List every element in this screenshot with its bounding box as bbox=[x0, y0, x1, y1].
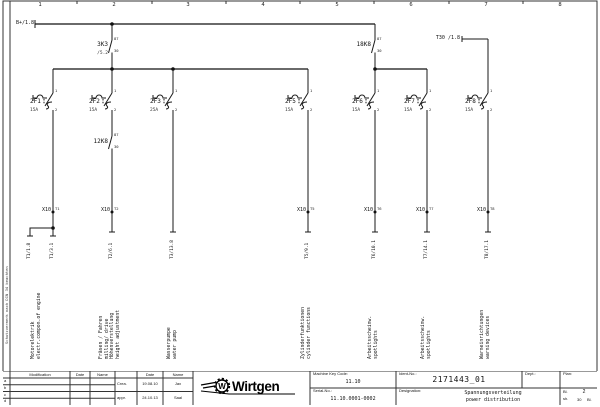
fuse-label: 2F8 bbox=[465, 99, 476, 105]
relay-18k8-label: 18K8 bbox=[347, 42, 371, 48]
fuse-rating: 25A bbox=[150, 108, 158, 113]
function-line: Fräsen / Fahren bbox=[99, 310, 105, 359]
fuse-label: 2F1 bbox=[30, 99, 41, 105]
wire-label: T8/17.1 bbox=[485, 240, 490, 259]
sign-date-header: Date bbox=[137, 373, 163, 378]
relay-3k3-label: 3K3 bbox=[88, 42, 108, 48]
function-line: Höhenverstellung bbox=[110, 310, 116, 359]
relay-12k8-pin30: 30 bbox=[114, 145, 119, 149]
fuse-pin2: 2 bbox=[429, 108, 431, 112]
date-header: Date bbox=[70, 373, 90, 378]
function-line: spotlights bbox=[374, 316, 380, 359]
row-letter: d bbox=[4, 399, 6, 404]
sheet-bl-label: Bl. bbox=[563, 390, 568, 395]
function-line: cylinder functions bbox=[307, 307, 313, 359]
terminal-strip-label: X10 bbox=[292, 208, 306, 213]
row-letter: c bbox=[4, 393, 6, 398]
ruler-4: 4 bbox=[253, 2, 273, 8]
serial-no-value: 11.10.0001-0002 bbox=[310, 397, 396, 402]
wire-label: T3/13.8 bbox=[170, 240, 175, 259]
terminal-pin: T8 bbox=[490, 207, 495, 211]
terminal-pin: T7 bbox=[429, 207, 434, 211]
fuse-label: 2F3 bbox=[150, 99, 161, 105]
fuse-pin1: 1 bbox=[429, 89, 431, 93]
schematic-lines bbox=[0, 0, 600, 371]
mod-header: Modification bbox=[10, 373, 70, 378]
row-letter: b bbox=[4, 386, 6, 391]
relay-18k8-pin87: 87 bbox=[377, 37, 382, 41]
breaker-symbols bbox=[33, 93, 488, 109]
designation-en: power distribution bbox=[433, 398, 553, 403]
function-label-water-pump: Wasserpumpe water pump bbox=[167, 327, 178, 359]
fuse-pin1: 1 bbox=[310, 89, 312, 93]
fuse-rating: 15A bbox=[404, 108, 412, 113]
ruler-8: 8 bbox=[550, 2, 570, 8]
sign-name: Saal bbox=[163, 396, 193, 401]
ident-no-value: 2171443_01 bbox=[396, 378, 522, 383]
sheet-total-suffix: Bl. bbox=[587, 398, 592, 403]
terminal-strip-label: X10 bbox=[37, 208, 51, 213]
function-line: Arbeitsscheinw. bbox=[368, 316, 374, 359]
ruler-5: 5 bbox=[327, 2, 347, 8]
function-line: height adjustment bbox=[116, 310, 122, 359]
sheet-total: 30 bbox=[577, 398, 581, 403]
sign-date: 19.08.10 bbox=[137, 382, 163, 387]
machine-key-label: Machine Key Code: bbox=[313, 372, 348, 377]
fuse-rating: 15A bbox=[465, 108, 473, 113]
function-label-cylinder: Zylinderfunktionen cylinder functions bbox=[301, 307, 312, 359]
fuse-pin2: 2 bbox=[55, 108, 57, 112]
function-line: Wasserpumpe bbox=[167, 327, 173, 359]
wire-label: T1/3.1 bbox=[50, 243, 55, 259]
fuse-label: 2F7 bbox=[404, 99, 415, 105]
relay-3k3-pin87: 87 bbox=[114, 37, 119, 41]
sign-name-header: Name bbox=[163, 373, 193, 378]
drawing-frame bbox=[3, 1, 597, 371]
schematic-sheet: 1 2 3 4 5 6 7 8 B+/1.8 T30 /1.8 3K3 /5.2… bbox=[0, 0, 600, 407]
ruler-7: 7 bbox=[476, 2, 496, 8]
fuse-pin2: 2 bbox=[490, 108, 492, 112]
relay-12k8-pin87: 87 bbox=[114, 133, 119, 137]
fuse-rating: 15A bbox=[352, 108, 360, 113]
junction-dots bbox=[51, 22, 489, 230]
fuse-pin1: 1 bbox=[114, 89, 116, 93]
function-line: Arbeitsscheinw. bbox=[421, 316, 427, 359]
function-line: Warneinrichtungen bbox=[480, 310, 486, 359]
terminal-strip-label: X10 bbox=[96, 208, 110, 213]
terminal-strip-label: X10 bbox=[359, 208, 373, 213]
function-label-spotlights-2: Arbeitsscheinw. spotlights bbox=[421, 316, 432, 359]
wire-label: T1/1.8 bbox=[27, 243, 32, 259]
ruler-1: 1 bbox=[30, 2, 50, 8]
terminal-strip-label: X10 bbox=[411, 208, 425, 213]
sign-row-label: appr. bbox=[117, 396, 126, 401]
wire-label: T7/14.1 bbox=[424, 240, 429, 259]
sheet-sh-label: sh. bbox=[563, 397, 568, 402]
fuse-pin2: 2 bbox=[114, 108, 116, 112]
ruler-6: 6 bbox=[401, 2, 421, 8]
sign-date: 24.10.13 bbox=[137, 396, 163, 401]
ruler-2: 2 bbox=[104, 2, 124, 8]
wire-label: T2/6.1 bbox=[109, 243, 114, 259]
relay-3k3-ref: /5.2 bbox=[92, 51, 108, 56]
designation-de: Spannungsverteilung bbox=[433, 391, 553, 396]
wirtgen-logo: W Wirtgen bbox=[199, 377, 303, 399]
sheet-number: 2 bbox=[573, 390, 595, 395]
terminal-pin: T6 bbox=[377, 207, 382, 211]
sign-name: Jax bbox=[163, 382, 193, 387]
function-label-warning: Warneinrichtungen warning devices bbox=[480, 310, 491, 359]
fuse-label: 2F6 bbox=[352, 99, 363, 105]
terminal-pin: T1 bbox=[55, 207, 60, 211]
designation-label: Designation: bbox=[399, 389, 421, 394]
relay-3k3-pin30: 30 bbox=[114, 49, 119, 53]
row-letter: a bbox=[4, 379, 6, 384]
fuse-pin2: 2 bbox=[377, 108, 379, 112]
t30-label: T30 /1.8 bbox=[432, 36, 460, 41]
fuse-pin2: 2 bbox=[175, 108, 177, 112]
function-line: spotlights bbox=[427, 316, 433, 359]
wire-label: T6/10.1 bbox=[372, 240, 377, 259]
ruler-3: 3 bbox=[178, 2, 198, 8]
fuse-label: 2F2 bbox=[89, 99, 100, 105]
fuse-rating: 15A bbox=[89, 108, 97, 113]
function-label-milling-drive: Fräsen / Fahren milling/ drive Höhenvers… bbox=[99, 310, 121, 359]
function-line: warning devices bbox=[486, 310, 492, 359]
terminal-pin: T2 bbox=[114, 207, 119, 211]
dept-label: Dept.: bbox=[525, 372, 536, 377]
plan-label: Plan: bbox=[563, 372, 572, 377]
fuse-pin1: 1 bbox=[490, 89, 492, 93]
function-label-spotlights-1: Arbeitsscheinw. spotlights bbox=[368, 316, 379, 359]
name-header: Name bbox=[90, 373, 115, 378]
relay-18k8-pin30: 30 bbox=[377, 49, 382, 53]
fuse-rating: 15A bbox=[285, 108, 293, 113]
function-line: Zylinderfunktionen bbox=[301, 307, 307, 359]
fuse-pin1: 1 bbox=[55, 89, 57, 93]
sign-row-label: Crea. bbox=[117, 382, 127, 387]
function-line: water pump bbox=[173, 327, 179, 359]
fuse-rating: 15A bbox=[30, 108, 38, 113]
bus-label: B+/1.8 bbox=[8, 21, 34, 26]
title-block: a b c d Modification Date Name Date Name… bbox=[3, 371, 597, 405]
wire-label: T5/9.1 bbox=[305, 243, 310, 259]
terminal-pin: T5 bbox=[310, 207, 315, 211]
function-label-engine: Motorelektrik electr.compon.of engine bbox=[31, 293, 42, 359]
fuse-pin2: 2 bbox=[310, 108, 312, 112]
fuse-label: 2F5 bbox=[285, 99, 296, 105]
terminal-strip-label: X10 bbox=[472, 208, 486, 213]
logo-w: W bbox=[218, 382, 226, 391]
machine-key-value: 11.10 bbox=[310, 380, 396, 385]
fuse-pin1: 1 bbox=[377, 89, 379, 93]
brand-text: Wirtgen bbox=[232, 379, 279, 394]
fuse-pin1: 1 bbox=[175, 89, 177, 93]
ident-no-label: Ident-No.: bbox=[399, 372, 417, 377]
protection-note: Schutzvermerk nach DIN 34 beachten bbox=[4, 266, 9, 344]
function-line: electr.compon.of engine bbox=[37, 293, 43, 359]
relay-12k8-label: 12K8 bbox=[84, 139, 108, 145]
serial-no-label: Serial-No.: bbox=[313, 389, 332, 394]
